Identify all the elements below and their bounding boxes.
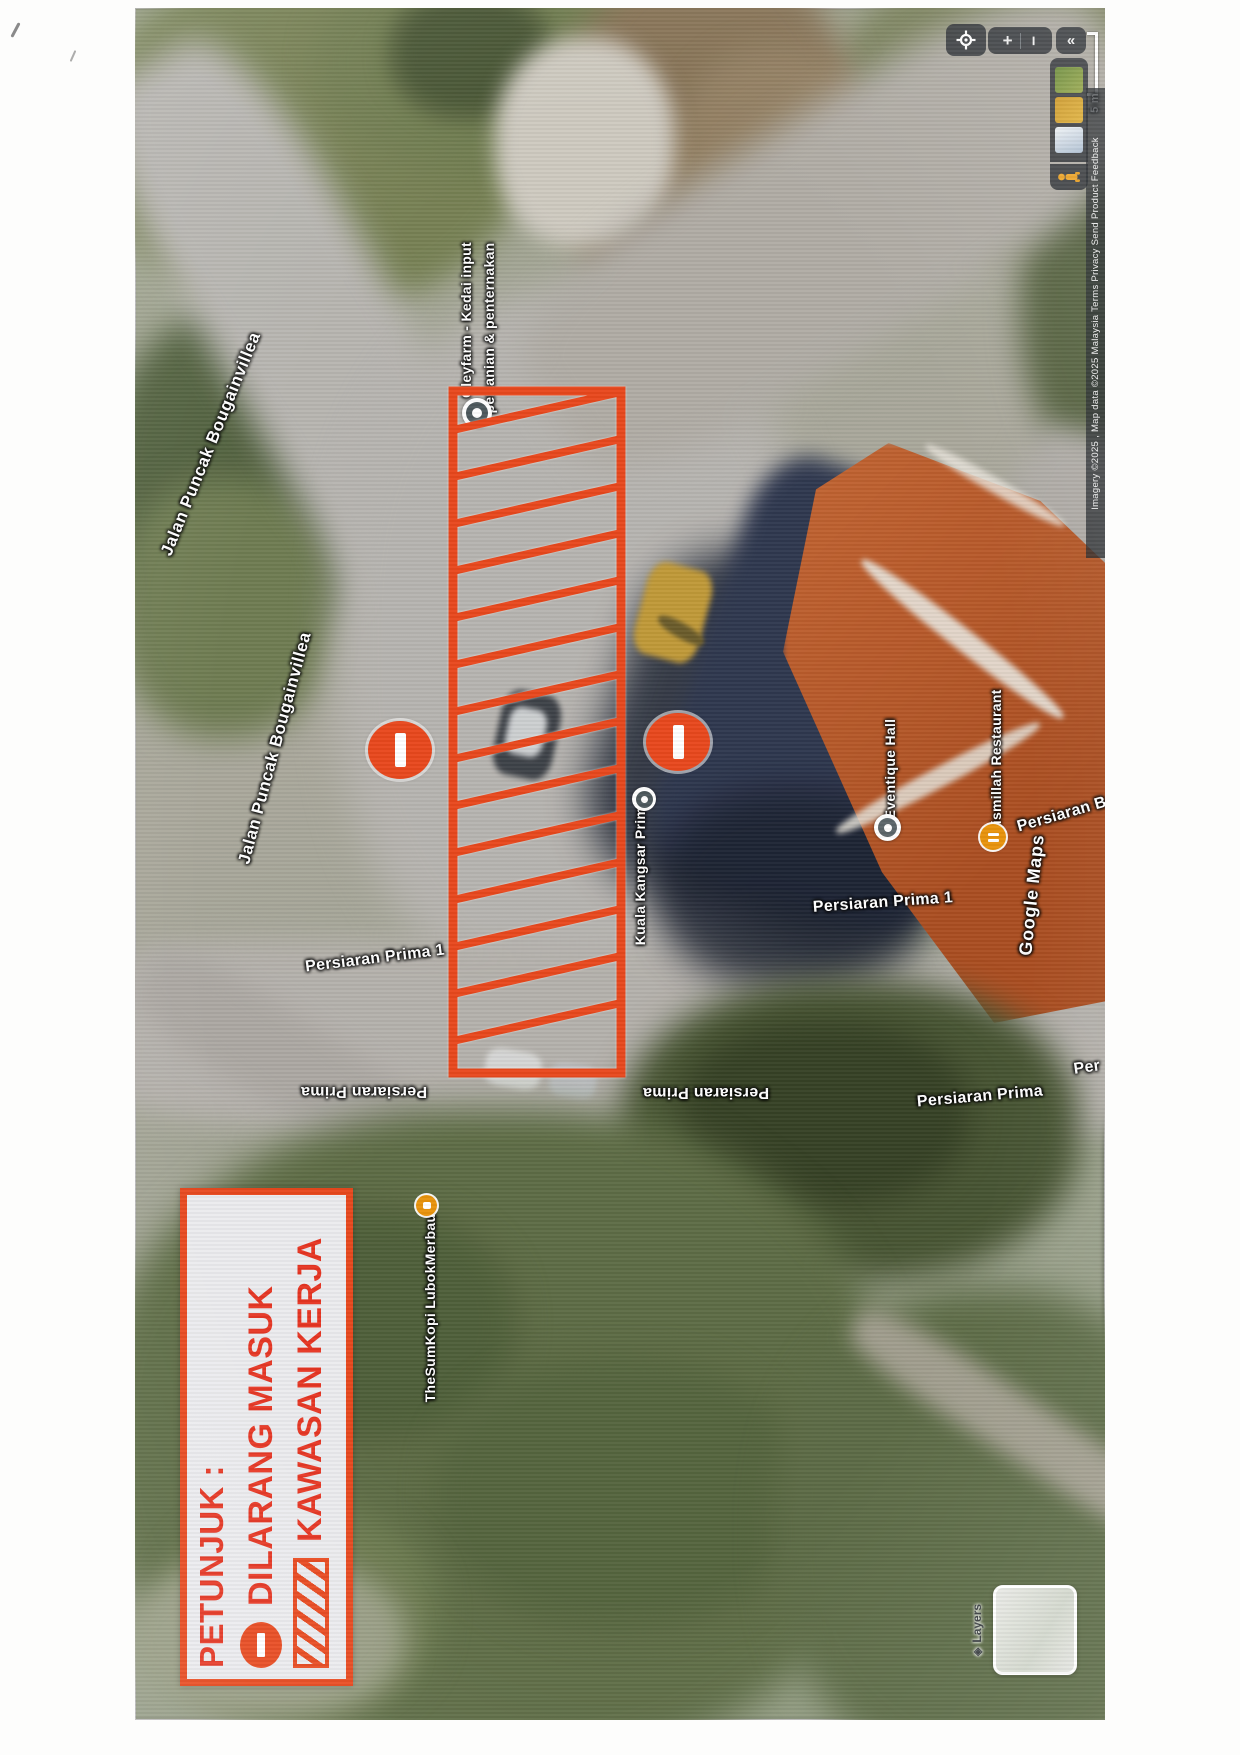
legend-content: PETUNJUK : DILARANG MASUK KAWASAN KERJA bbox=[193, 1206, 341, 1668]
hatched-area-legend-icon bbox=[292, 1558, 328, 1668]
terrain-grass bbox=[135, 478, 335, 738]
road-label: Per bbox=[1073, 1057, 1102, 1079]
restaurant-marker-bismillah[interactable] bbox=[980, 824, 1006, 850]
my-location-button[interactable] bbox=[946, 24, 986, 56]
imagery-thumbnail[interactable] bbox=[1055, 97, 1083, 123]
cafe-marker-thesumkopi[interactable] bbox=[416, 1195, 437, 1216]
poi-marker-ring bbox=[878, 818, 897, 837]
legend-title: PETUNJUK : bbox=[193, 1206, 231, 1668]
attribution-bar[interactable]: Imagery ©2025 , Map data ©2025 Malaysia … bbox=[1086, 88, 1105, 558]
poi-label: Kuala Kangsar Prima bbox=[632, 799, 648, 946]
legend-box: PETUNJUK : DILARANG MASUK KAWASAN KERJA bbox=[180, 1188, 353, 1686]
google-maps-satellite-view[interactable]: Jalan Puncak Bougainvillea Jalan Puncak … bbox=[135, 8, 1105, 1720]
work-zone-hatched-area bbox=[448, 386, 626, 1078]
poi-label: Eventique Hall bbox=[882, 719, 898, 820]
road-label: Persiaran Prima bbox=[301, 1082, 427, 1100]
legend-item-label: DILARANG MASUK bbox=[241, 1285, 280, 1606]
pencil-mark bbox=[70, 50, 77, 62]
scale-bar bbox=[1087, 32, 1098, 96]
legend-item-no-entry: DILARANG MASUK bbox=[240, 1206, 282, 1668]
imagery-thumbnails-panel[interactable] bbox=[1050, 58, 1088, 162]
no-entry-symbol bbox=[646, 713, 710, 771]
poi-marker-kuala-kangsar[interactable] bbox=[632, 787, 656, 811]
poi-label: Bismillah Restaurant bbox=[988, 689, 1004, 834]
zoom-control[interactable]: + − bbox=[988, 27, 1052, 54]
poi-marker-eventique[interactable] bbox=[874, 814, 901, 841]
imagery-thumbnail[interactable] bbox=[1055, 127, 1083, 153]
legend-item-work-area: KAWASAN KERJA bbox=[291, 1206, 330, 1668]
pencil-mark bbox=[10, 22, 20, 38]
pegman-button[interactable] bbox=[1050, 164, 1088, 190]
pegman-icon bbox=[1057, 170, 1081, 184]
scanned-document-page: Jalan Puncak Bougainvillea Jalan Puncak … bbox=[0, 0, 1240, 1755]
poi-label: Gleyfarm - Kedai input bbox=[458, 242, 474, 398]
no-entry-legend-icon bbox=[240, 1622, 282, 1668]
layers-button[interactable] bbox=[993, 1585, 1077, 1675]
collapse-icon: « bbox=[1067, 32, 1075, 49]
divider bbox=[1020, 33, 1021, 49]
no-entry-bar bbox=[673, 725, 684, 759]
poi-label: TheSumKopi LubokMerbau bbox=[422, 1214, 438, 1403]
layers-label: ◈ Layers bbox=[970, 1604, 984, 1656]
no-entry-bar bbox=[395, 733, 406, 767]
imagery-thumbnail[interactable] bbox=[1055, 67, 1083, 93]
collapse-side-panel-button[interactable]: « bbox=[1056, 27, 1086, 54]
my-location-icon bbox=[956, 30, 976, 50]
zoom-out-button[interactable]: − bbox=[1022, 36, 1042, 46]
coffee-icon bbox=[423, 1202, 431, 1209]
fork-knife-icon bbox=[988, 833, 999, 842]
terrain-field bbox=[435, 1358, 805, 1628]
layers-stack-icon: ◈ bbox=[971, 1648, 984, 1656]
zoom-in-button[interactable]: + bbox=[1003, 31, 1013, 51]
no-entry-symbol bbox=[368, 721, 432, 779]
road-label: Persiaran Prima bbox=[643, 1083, 769, 1101]
layers-label-text: Layers bbox=[970, 1604, 984, 1643]
legend-item-label: KAWASAN KERJA bbox=[291, 1237, 330, 1542]
poi-marker-ring bbox=[636, 791, 653, 808]
attribution-text: Imagery ©2025 , Map data ©2025 Malaysia … bbox=[1090, 137, 1101, 510]
